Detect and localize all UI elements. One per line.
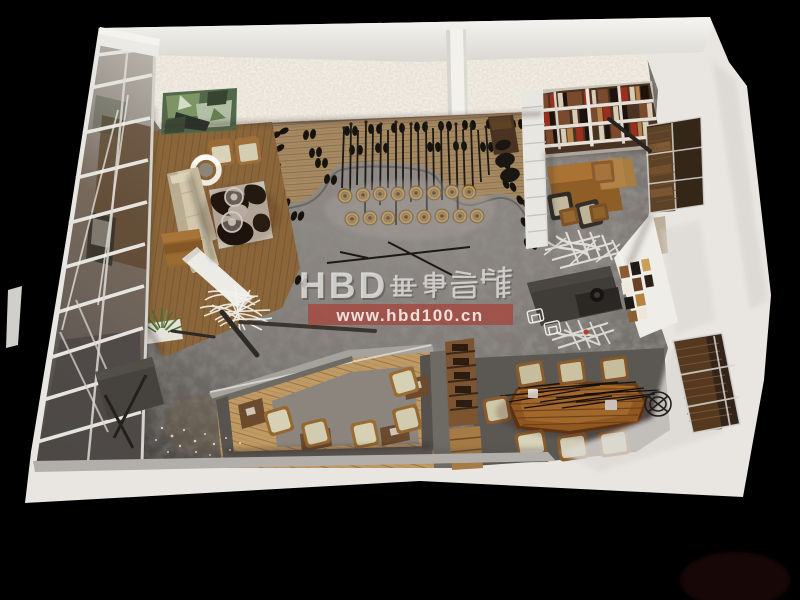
svg-text:HBD: HBD: [299, 265, 388, 306]
svg-text:www.hbd100.cn: www.hbd100.cn: [335, 306, 483, 325]
